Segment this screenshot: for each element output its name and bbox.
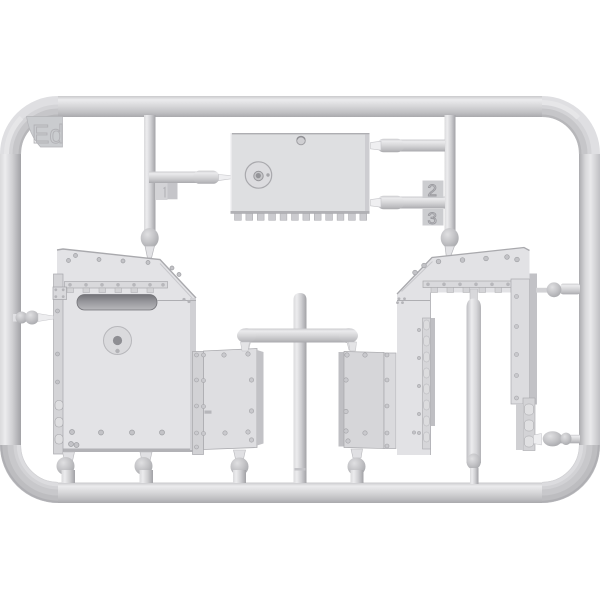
svg-text:Ed: Ed — [32, 119, 64, 149]
svg-text:2: 2 — [428, 181, 437, 200]
svg-text:3: 3 — [428, 209, 437, 228]
